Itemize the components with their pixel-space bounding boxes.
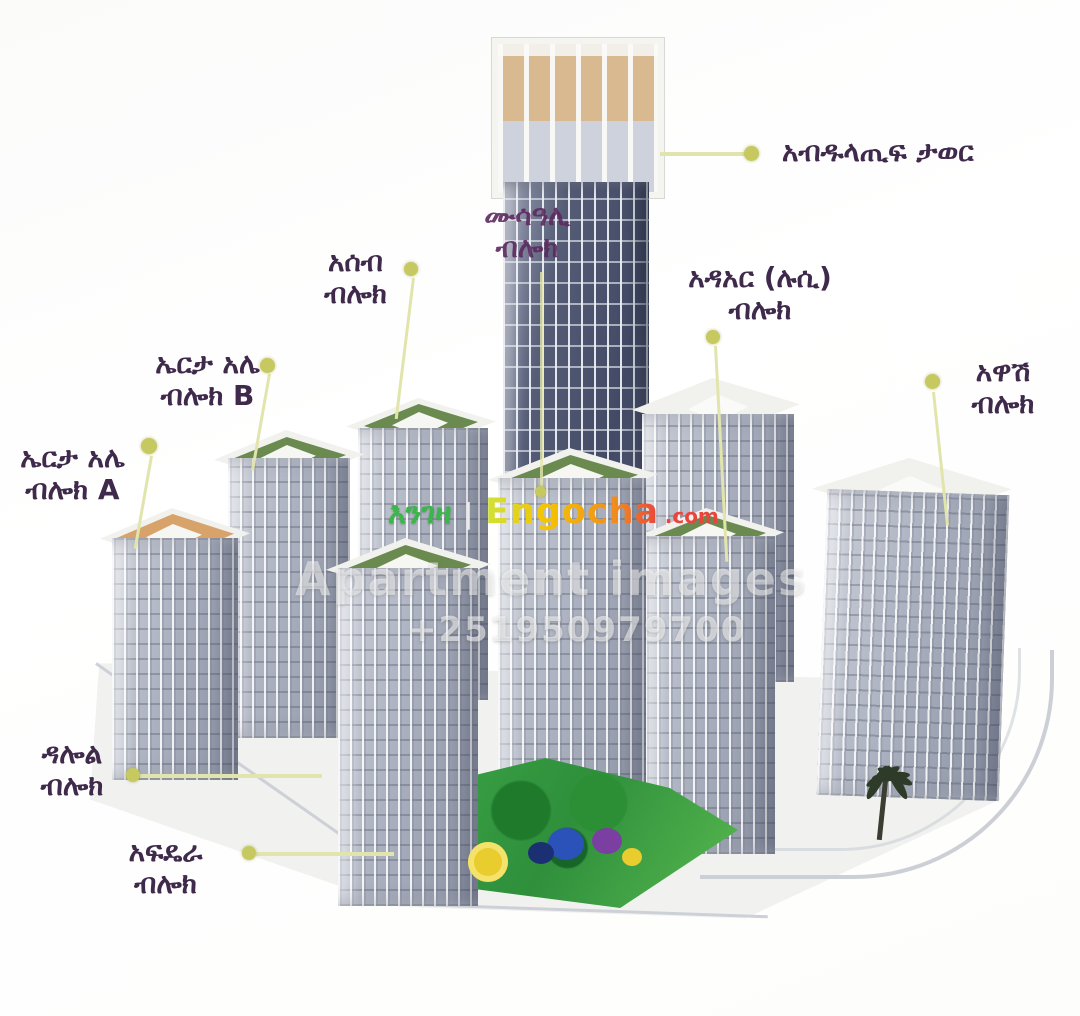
label-adaar-lucy-block: አዳአር (ሉሲ) ብሎክ xyxy=(670,262,850,326)
leader-musa-ali xyxy=(540,272,543,490)
label-erta-ale-a-line1: ኤርታ አሌ xyxy=(0,442,145,474)
leader-afdera xyxy=(256,852,394,856)
playground-yellow-circle xyxy=(468,842,508,882)
engocha-brand-watermark: እንገዛ | Engocha .com xyxy=(388,492,719,532)
label-erta-ale-b-line2: ብሎክ B xyxy=(130,380,285,412)
engocha-amharic-wordmark: እንገዛ xyxy=(388,496,452,531)
label-erta-ale-a-block: ኤርታ አሌ ብሎክ A xyxy=(0,442,145,506)
apartment-images-watermark: Apartment images xyxy=(295,552,795,606)
label-awash-line1: አዋሽ xyxy=(938,356,1068,388)
label-erta-ale-b-block: ኤርታ አሌ ብሎክ B xyxy=(130,348,285,412)
leader-dallol xyxy=(140,774,322,778)
label-musa-ali-line1: ሙሳዓሊ xyxy=(452,200,602,232)
label-dallol-block: ዳሎል ብሎክ xyxy=(16,738,128,802)
label-dallol-line2: ብሎክ xyxy=(16,770,128,802)
label-awash-line2: ብሎክ xyxy=(938,388,1068,420)
engocha-latin-wordmark: Engocha xyxy=(485,492,659,532)
label-erta-ale-a-line2: ብሎክ A xyxy=(0,474,145,506)
leader-dot-afdera xyxy=(242,846,256,860)
label-aseb-block: አሰብ ብሎክ xyxy=(298,246,413,310)
erta-ale-a-block xyxy=(112,538,238,780)
leader-dot-adaar-lucy xyxy=(706,330,720,344)
label-afdera-block: አፍዴራ ብሎክ xyxy=(98,836,233,900)
label-adaar-lucy-line1: አዳአር (ሉሲ) xyxy=(670,262,850,294)
apartment-site-plan-image: አብዱላጢፍ ታወር ሙሳዓሊ ብሎክ አሰብ ብሎክ ኤርታ አሌ ብሎክ B… xyxy=(0,0,1080,1016)
label-dallol-line1: ዳሎል xyxy=(16,738,128,770)
awash-block xyxy=(817,489,1010,801)
brand-separator: | xyxy=(463,497,473,530)
label-abdulatif-tower-text: አብዱላጢፍ ታወር xyxy=(782,136,1042,168)
label-afdera-line1: አፍዴራ xyxy=(98,836,233,868)
leader-dot-dallol xyxy=(126,768,140,782)
label-abdulatif-tower: አብዱላጢፍ ታወር xyxy=(782,136,1042,168)
label-adaar-lucy-line2: ብሎክ xyxy=(670,294,850,326)
label-aseb-line2: ብሎክ xyxy=(298,278,413,310)
label-musa-ali-line2: ብሎክ xyxy=(452,232,602,264)
playground-navy-dome xyxy=(528,842,554,864)
leader-abdulatif-tower xyxy=(660,152,748,156)
engocha-tld: .com xyxy=(665,504,719,528)
leader-dot-abdulatif-tower xyxy=(744,146,759,161)
abdulatif-tower-crown xyxy=(492,38,664,198)
label-aseb-line1: አሰብ xyxy=(298,246,413,278)
playground-purple-dome xyxy=(592,828,622,854)
label-musa-ali-block: ሙሳዓሊ ብሎክ xyxy=(452,200,602,264)
phone-number-watermark: +251950979700 xyxy=(408,610,746,650)
playground-small-yellow xyxy=(622,848,642,866)
label-erta-ale-b-line1: ኤርታ አሌ xyxy=(130,348,285,380)
label-afdera-line2: ብሎክ xyxy=(98,868,233,900)
label-awash-block: አዋሽ ብሎክ xyxy=(938,356,1068,420)
palm-tree xyxy=(852,752,912,842)
